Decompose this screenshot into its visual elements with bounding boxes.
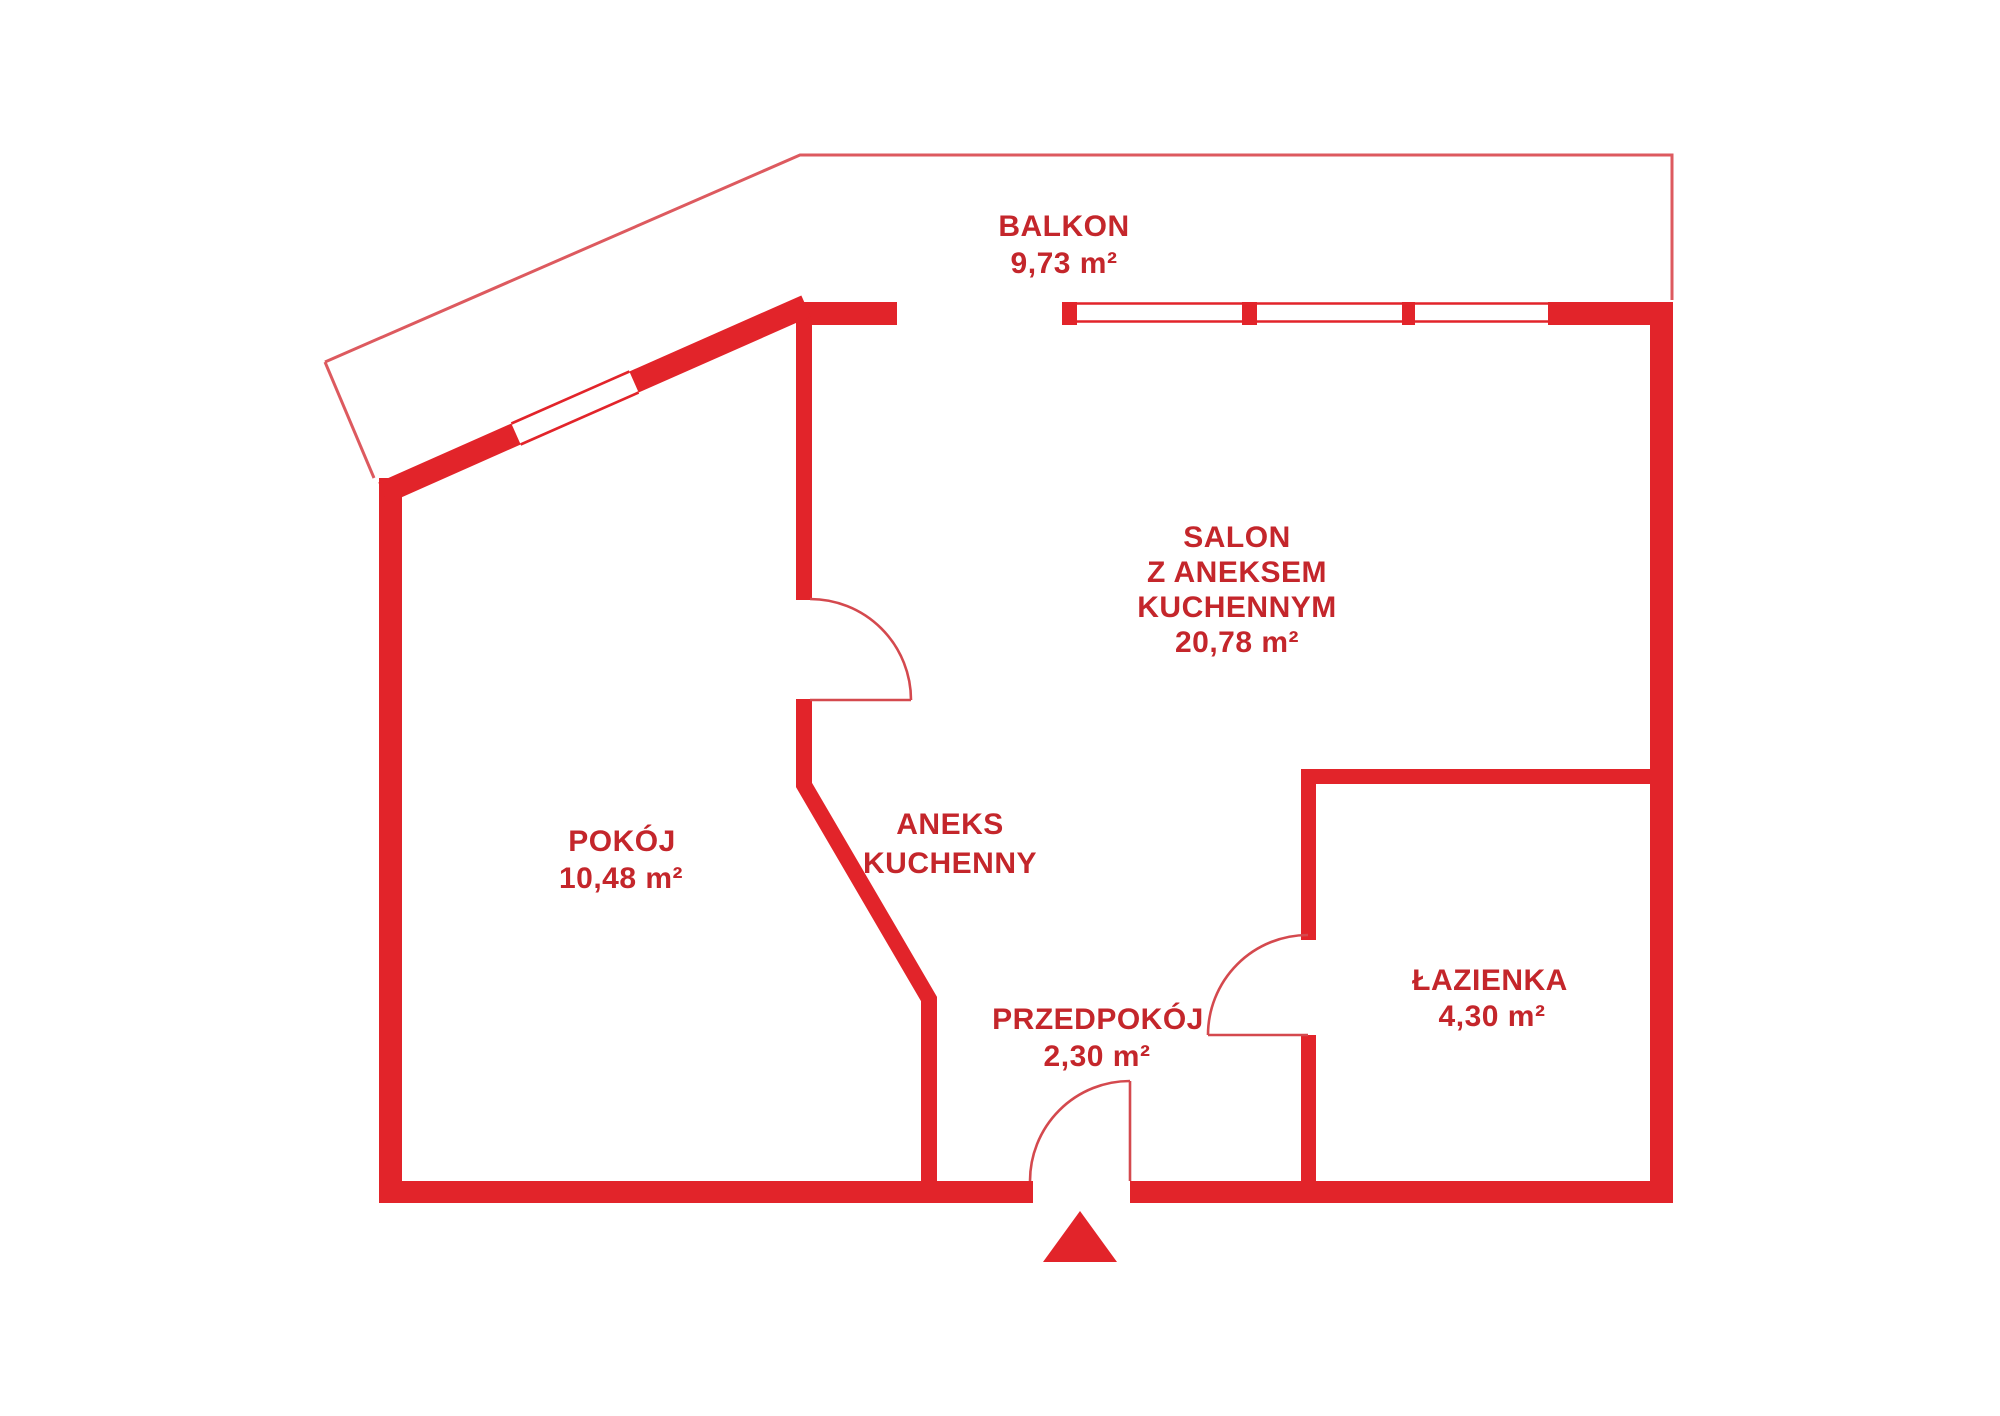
salon-area: 20,78 m² — [1175, 626, 1299, 659]
entrance-door-arc — [1030, 1081, 1130, 1181]
pokoj-door-arc — [810, 599, 911, 700]
diagonal-wall-upper-segment — [634, 306, 806, 382]
window-mullion-1 — [1242, 302, 1257, 325]
window-frame-stub — [1062, 302, 1077, 325]
przedpokoj-area: 2,30 m² — [1044, 1040, 1151, 1073]
bathroom-door — [1208, 935, 1308, 1035]
left-wall — [379, 478, 402, 1203]
balcony-outline-path — [325, 155, 1672, 362]
bottom-wall-left — [379, 1181, 1033, 1203]
przedpokoj-label: PRZEDPOKÓJ — [992, 1002, 1204, 1036]
entrance-door — [1030, 1081, 1130, 1181]
diagonal-window-outer-line — [511, 372, 629, 424]
bathroom-door-arc — [1208, 935, 1308, 1035]
top-wall-left-segment — [796, 302, 897, 325]
bottom-wall-right — [1130, 1181, 1673, 1203]
window-mullion-2 — [1402, 302, 1415, 325]
kitchen-wall-lower — [804, 699, 929, 1181]
top-wall-windows — [1062, 302, 1548, 325]
pokoj-label: POKÓJ — [568, 824, 676, 858]
exterior-walls — [379, 302, 1673, 1203]
bathroom-top-wall — [1301, 769, 1650, 784]
interior-walls — [804, 322, 1650, 1181]
balcony-outline — [325, 155, 1672, 478]
pokoj-door — [810, 599, 911, 700]
salon-label-line3: KUCHENNYM — [1137, 591, 1337, 624]
right-wall — [1650, 302, 1673, 1203]
salon-label-line2: Z ANEKSEM — [1147, 556, 1327, 589]
aneks-label-line1: ANEKS — [896, 808, 1004, 841]
diagonal-wall-lower-segment — [383, 434, 516, 493]
bathroom-left-wall-lower — [1301, 1035, 1316, 1181]
floor-plan-canvas: BALKON 9,73 m² SALON Z ANEKSEM KUCHENNYM… — [0, 0, 2000, 1416]
lazienka-label: ŁAZIENKA — [1412, 964, 1568, 997]
top-wall-right-segment — [1548, 302, 1673, 325]
pokoj-area: 10,48 m² — [559, 862, 683, 895]
aneks-label-line2: KUCHENNY — [863, 847, 1037, 880]
balkon-area: 9,73 m² — [1011, 247, 1118, 280]
diagonal-wall-window — [511, 372, 638, 445]
bathroom-left-wall-upper — [1301, 769, 1316, 940]
salon-label-line1: SALON — [1183, 521, 1291, 554]
diagonal-window-inner-line — [521, 393, 639, 445]
floor-plan: BALKON 9,73 m² SALON Z ANEKSEM KUCHENNYM… — [0, 0, 2000, 1416]
lazienka-area: 4,30 m² — [1439, 1000, 1546, 1033]
balcony-left-edge — [325, 362, 374, 478]
balkon-label: BALKON — [998, 210, 1129, 243]
entrance-arrow-icon — [1043, 1211, 1117, 1262]
